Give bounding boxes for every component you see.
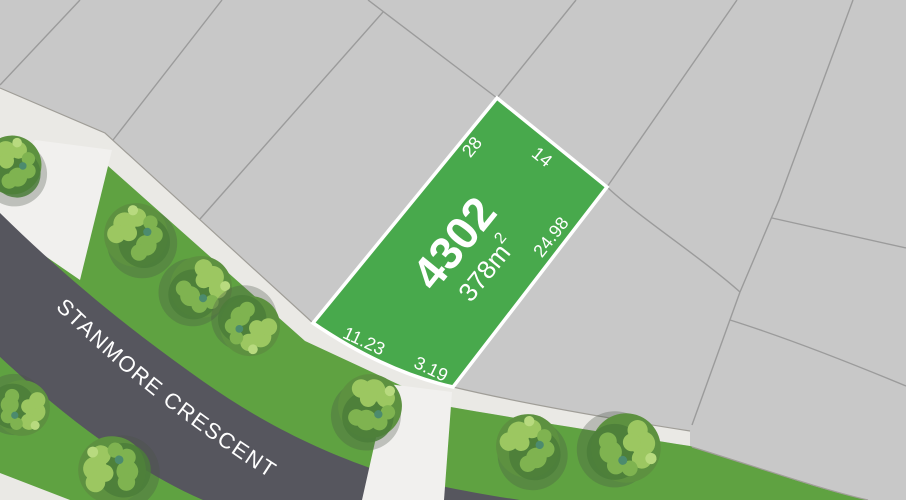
subdivision-map: 4302 378m2 28 14 24.98 11.23 3.19 STANMO… [0,0,906,500]
map-canvas: 4302 378m2 28 14 24.98 11.23 3.19 STANMO… [0,0,906,500]
